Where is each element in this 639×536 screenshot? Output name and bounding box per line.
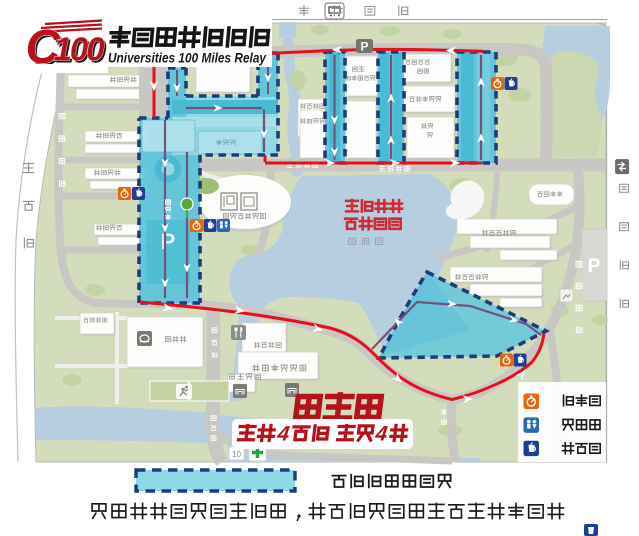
svg-text:100: 100	[54, 31, 106, 68]
svg-text:10: 10	[232, 450, 241, 459]
svg-text:P: P	[161, 229, 176, 254]
svg-text:P: P	[588, 256, 601, 277]
svg-text:Universities 100 Miles Relay: Universities 100 Miles Relay	[108, 51, 267, 66]
